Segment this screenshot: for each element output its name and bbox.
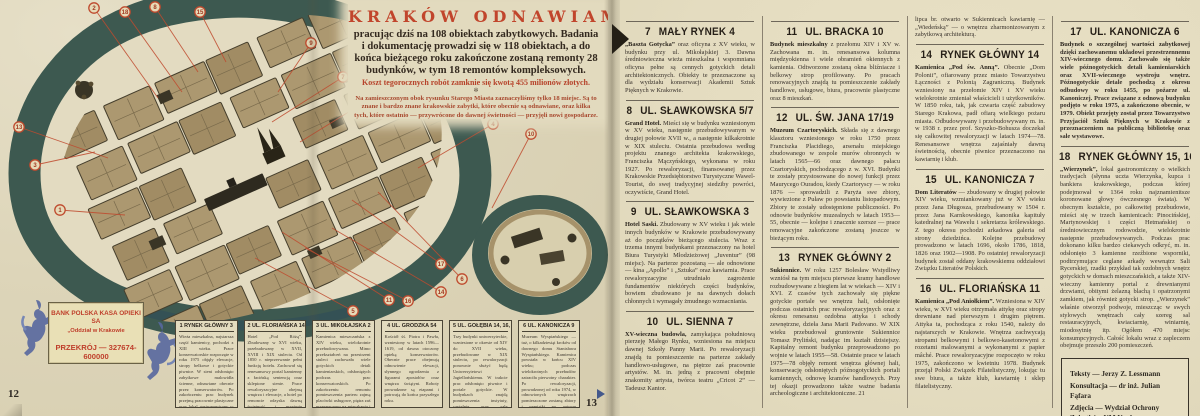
article-section-13: 13RYNEK GŁÓWNY 2Sukiennice. W roku 1257 … [769,247,901,397]
cherub-right-icon [138,318,180,404]
article-section-15: 15UL. KANONICZA 7Dom Literatów — zbudowa… [914,169,1046,273]
right-page: 7MAŁY RYNEK 4„Baszta Gotycka” oraz oficy… [620,0,1200,416]
page-number-right: 13 [586,397,597,409]
map-number-badge-5: 5 [348,306,358,316]
article-section-7: 7MAŁY RYNEK 4„Baszta Gotycka” oraz oficy… [624,21,756,95]
title-block: KRAKÓW ODNAWIAMY pracując dziś na 108 ob… [348,3,604,119]
section-heading: 18RYNEK GŁÓWNY 15, 16 i 17 [1059,151,1191,163]
map-number-badge-10: 10 [526,129,536,139]
section-body: „Baszta Gotycka” oraz oficyna z XV wieku… [625,41,755,95]
info-box-3: 3 UL. MIKOŁAJSKA 2Kamienica mieszczańska… [312,320,375,408]
map-number-badge-13: 13 [14,122,24,132]
info-box-4: 4 UL. GRODZKA 54Kościół śś. Piotra i Paw… [381,320,444,408]
separator-rule [1061,146,1189,147]
column-rule [762,16,763,408]
info-box-5: 5 UL. GOŁĘBIA 14, 16, 18Trzy budynki uni… [449,320,512,408]
info-box-heading: 4 UL. GRODZKA 54 [385,323,440,332]
wawel-castle [472,195,608,315]
svg-text:11: 11 [386,298,393,304]
svg-text:17: 17 [438,262,445,268]
section-heading: 10UL. SIENNA 7 [624,316,756,328]
column-rule [907,16,908,408]
section-heading: 9UL. SŁAWKOWSKA 3 [624,206,756,218]
text-column-2: 11UL. BRACKA 10Budynek mieszkalny z prze… [769,16,901,416]
info-box-heading: 5 UL. GOŁĘBIA 14, 16, 18 [453,323,508,332]
map-number-badge-9: 9 [306,38,316,48]
separator-rule [626,21,754,22]
info-box-heading: 2 UL. FLORIAŃSKA 14 [248,323,303,332]
section-body: Hotel Saski. Zbudowany w XV wieku i jak … [625,221,755,305]
article-section-14: 14RYNEK GŁÓWNY 14Kamienica „Pod św. Anną… [914,44,1046,164]
svg-text:13: 13 [16,125,23,131]
section-body: Kamienica „Pod Aniołkiem”. Wzniesiona w … [915,298,1045,390]
page-number-left: 12 [8,388,19,400]
info-box-body: Muzeum Wyspiańskiego — tuż, o kilkadzies… [522,334,577,408]
map-number-badge-18: 18 [120,7,130,17]
credits-box: Teksty — Jerzy Z. LessmannKonsultacja — … [1061,358,1189,416]
info-box-heading: 1 RYNEK GŁÓWNY 3 [179,323,234,332]
bank-ad-plate: BANK POLSKA KASA OPIEKI SA „Oddział w Kr… [48,302,144,364]
info-box-6: 6 UL. KANONICZA 9Muzeum Wyspiańskiego — … [518,320,581,408]
bank-ad-line2: „Oddział w Krakowie [49,327,143,335]
separator-rule [771,247,899,248]
article-section-18: 18RYNEK GŁÓWNY 15, 16 i 17„Wierzynek”, l… [1059,146,1191,350]
text-column-4: 17UL. KANONICZA 6Budynek o szczególnej w… [1059,16,1191,416]
continuation-arrow-icon [597,389,605,399]
column-rule [1052,16,1053,408]
info-box-2: 2 UL. FLORIAŃSKA 14Hotel „Pod Różą”. Zbu… [244,320,307,408]
article-section-8: 8UL. SŁAWKOWSKA 5/7Grand Hotel. Mieści s… [624,100,756,197]
section-heading: 15UL. KANONICZA 7 [914,174,1046,186]
section-heading: 11UL. BRACKA 10 [769,26,901,38]
info-box-body: Kamienica mieszczańska z XIV wieku, wiel… [316,334,371,408]
map-number-badge-2: 2 [89,3,99,13]
map-number-badge-15: 15 [195,7,205,17]
text-columns: 7MAŁY RYNEK 4„Baszta Gotycka” oraz oficy… [624,16,1191,416]
page-title: KRAKÓW ODNAWIAMY [348,7,604,26]
svg-text:14: 14 [438,290,445,296]
article-section-9: 9UL. SŁAWKOWSKA 3Hotel Saski. Zbudowany … [624,201,756,305]
section-body: XV-wieczna budowla, zamykająca południow… [625,331,755,392]
separator-rule [1061,21,1189,22]
lead-paragraph: pracując dziś na 108 obiektach zabytkowy… [352,29,600,77]
section-heading: 8UL. SŁAWKOWSKA 5/7 [624,105,756,117]
article-section-12: 12UL. ŚW. JANA 17/19Muzeum Czartoryskich… [769,107,901,242]
info-box-body: Wieża mieszkalna, najstarsza część kamie… [179,334,234,408]
info-box-heading: 3 UL. MIKOŁAJSKA 2 [316,323,371,332]
section-heading: 7MAŁY RYNEK 4 [624,26,756,38]
section-heading: 12UL. ŚW. JANA 17/19 [769,112,901,124]
separator-rule [771,21,899,22]
svg-text:15: 15 [197,10,204,16]
bank-ad-line1: BANK POLSKA KASA OPIEKI SA [49,310,143,327]
info-box-1: 1 RYNEK GŁÓWNY 3Wieża mieszkalna, najsta… [175,320,238,408]
article-section-10: 10UL. SIENNA 7XV-wieczna budowla, zamyka… [624,311,756,392]
map-number-badge-16: 16 [403,296,413,306]
magazine-spread: 123456789101112131415161718 KRAKÓW ODNAW… [0,0,1200,416]
separator-rule [626,100,754,101]
section-heading: 17UL. KANONICZA 6 [1059,26,1191,38]
left-page: 123456789101112131415161718 KRAKÓW ODNAW… [0,0,608,416]
numbered-info-boxes: 1 RYNEK GŁÓWNY 3Wieża mieszkalna, najsta… [175,320,580,408]
section-body: Budynek o szczególnej wartości zabytkowe… [1060,41,1190,141]
separator-rule [771,107,899,108]
map-number-badge-4: 4 [488,119,498,129]
bank-ad-account: PRZEKRÓJ — 327674-600000 [49,343,143,361]
credits-line: Zdjęcia — Wydział Ochrony Zabytków UM Kr… [1070,403,1180,416]
separator-rule [916,278,1044,279]
svg-text:16: 16 [405,299,412,305]
page-corner-shadow [0,404,22,416]
section-heading: 14RYNEK GŁÓWNY 14 [914,49,1046,61]
map-number-badge-3: 3 [30,160,40,170]
map-number-badge-6: 6 [457,274,467,284]
ornament-icon: ✻ [348,88,604,94]
section-body: Budynek mieszkalny z przełomu XIV i XV w… [770,41,900,102]
section-heading: 13RYNEK GŁÓWNY 2 [769,252,901,264]
map-number-badge-8: 8 [150,2,160,12]
bank-ad: BANK POLSKA KASA OPIEKI SA „Oddział w Kr… [20,296,180,408]
map-number-badge-11: 11 [384,295,394,305]
map-number-badge-17: 17 [436,259,446,269]
section-body: Kamienica „Pod św. Anną”. Obecnie „Dom P… [915,64,1045,164]
svg-text:10: 10 [528,132,535,138]
separator-rule [626,311,754,312]
section-body: „Wierzynek”, lokal gastronomiczny o wiel… [1060,166,1190,350]
section-body: Muzeum Czartoryskich. Składa się z dawne… [770,127,900,242]
article-section-17: 17UL. KANONICZA 6Budynek o szczególnej w… [1059,21,1191,141]
section-body: Grand Hotel. Mieści się w budynku wznies… [625,120,755,197]
map-number-badge-1: 1 [55,205,65,215]
info-box-heading: 6 UL. KANONICZA 9 [522,323,577,332]
text-column-3: lipca br. otwarto w Sukiennicach kawiarn… [914,16,1046,416]
text-column-1: 7MAŁY RYNEK 4„Baszta Gotycka” oraz oficy… [624,16,756,416]
note-paragraph: Na zamieszczonym obok rysunku Starego Mi… [354,95,598,120]
map-number-badge-14: 14 [436,287,446,297]
info-box-body: Hotel „Pod Różą”. Zbudowany w XVI wieku,… [248,334,303,408]
separator-rule [626,201,754,202]
section-heading: 16UL. FLORIAŃSKA 11 [914,283,1046,295]
article-continuation: lipca br. otwarto w Sukiennicach kawiarn… [914,16,1046,39]
section-body: Dom Literatów — zbudowany w drugiej poło… [915,189,1045,273]
map-number-badge-7: 7 [338,72,348,82]
separator-rule [916,169,1044,170]
credits-line: Teksty — Jerzy Z. Lessmann [1070,369,1180,378]
article-section-16: 16UL. FLORIAŃSKA 11Kamienica „Pod Aniołk… [914,278,1046,390]
separator-rule [916,44,1044,45]
section-body: Sukiennice. W roku 1257 Bolesław Wstydli… [770,267,900,397]
section-body: lipca br. otwarto w Sukiennicach kawiarn… [915,16,1045,39]
cost-line: Koszt tegorocznych robót zamknie się kwo… [348,78,604,87]
info-box-body: Kościół śś. Piotra i Pawła, wzniesiony w… [385,334,440,404]
info-box-body: Trzy budynki uniwersyteckie, wzniesione … [453,334,508,408]
svg-text:18: 18 [122,10,129,16]
credits-line: Konsultacja — dr inż. Julian Fąfara [1070,381,1180,400]
article-section-11: 11UL. BRACKA 10Budynek mieszkalny z prze… [769,21,901,102]
